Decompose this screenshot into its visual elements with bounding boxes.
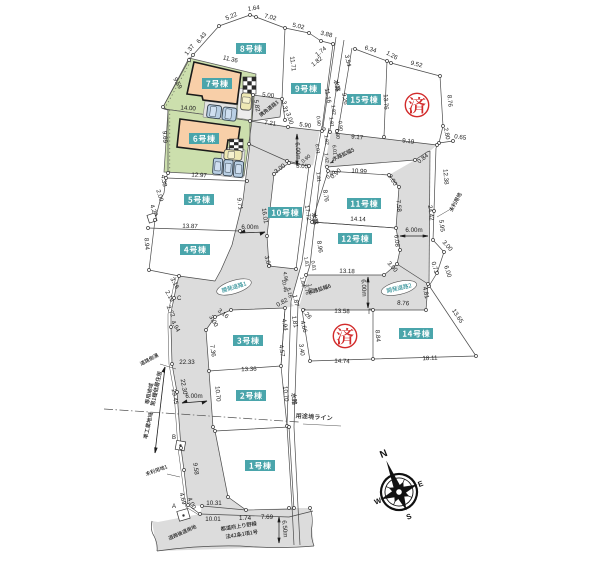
svg-text:7.69: 7.69 (261, 514, 274, 521)
svg-text:8.76: 8.76 (445, 95, 453, 108)
svg-text:8.94: 8.94 (142, 238, 150, 251)
svg-text:6.01: 6.01 (331, 145, 338, 156)
svg-text:10.31: 10.31 (206, 500, 222, 507)
svg-text:B: B (172, 435, 176, 441)
svg-text:10.70: 10.70 (213, 386, 221, 403)
svg-text:A: A (172, 504, 176, 510)
svg-text:14.14: 14.14 (350, 216, 366, 224)
svg-text:9.69: 9.69 (161, 131, 169, 144)
svg-text:10.01: 10.01 (205, 516, 221, 523)
svg-text:13.36: 13.36 (241, 366, 257, 374)
svg-text:13.76: 13.76 (382, 94, 390, 110)
svg-text:12.97: 12.97 (191, 172, 207, 180)
svg-text:6.08: 6.08 (392, 234, 400, 247)
svg-text:7.58: 7.58 (394, 199, 402, 212)
svg-text:13.18: 13.18 (339, 268, 355, 276)
svg-text:0.90: 0.90 (315, 116, 322, 127)
svg-text:13.87: 13.87 (182, 223, 198, 231)
svg-text:6.00m: 6.00m (405, 227, 422, 234)
svg-text:1.42: 1.42 (323, 153, 330, 164)
svg-text:8.76: 8.76 (397, 300, 410, 308)
svg-text:13.58: 13.58 (334, 308, 350, 316)
svg-text:9.17: 9.17 (351, 133, 364, 141)
svg-text:1.81: 1.81 (328, 117, 335, 128)
svg-text:1.82: 1.82 (330, 105, 337, 116)
svg-text:22.33: 22.33 (179, 359, 195, 366)
svg-text:14.74: 14.74 (334, 358, 350, 366)
svg-text:C: C (177, 296, 182, 302)
svg-text:1.81: 1.81 (315, 172, 322, 183)
svg-text:6.00m: 6.00m (185, 393, 202, 400)
svg-text:6.50m: 6.50m (280, 520, 288, 538)
svg-text:14.00: 14.00 (180, 104, 196, 112)
svg-text:6.00m: 6.00m (360, 279, 368, 297)
svg-text:8.84: 8.84 (373, 330, 381, 343)
svg-text:1.82: 1.82 (323, 135, 330, 146)
svg-text:5.00: 5.00 (262, 91, 275, 99)
svg-text:6.01: 6.01 (314, 144, 321, 155)
svg-text:10.99: 10.99 (351, 167, 367, 175)
svg-text:12.38: 12.38 (441, 169, 449, 186)
svg-text:6.00m: 6.00m (294, 142, 302, 160)
svg-text:18.11: 18.11 (422, 355, 438, 363)
svg-text:1.74: 1.74 (239, 515, 252, 522)
